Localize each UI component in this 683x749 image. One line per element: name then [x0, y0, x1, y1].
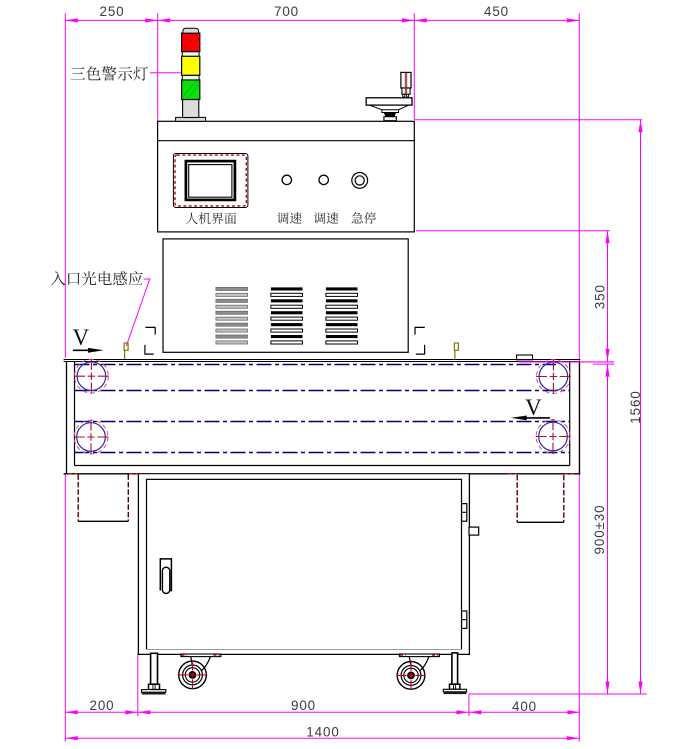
svg-text:350: 350 — [592, 284, 607, 309]
svg-text:450: 450 — [484, 4, 509, 19]
svg-text:1560: 1560 — [628, 390, 643, 423]
svg-text:V: V — [72, 325, 89, 350]
svg-text:V: V — [525, 395, 542, 420]
svg-text:200: 200 — [89, 698, 114, 713]
svg-text:250: 250 — [99, 4, 124, 19]
svg-text:400: 400 — [512, 699, 537, 714]
svg-text:900: 900 — [291, 698, 316, 713]
svg-text:700: 700 — [274, 4, 299, 19]
svg-text:1400: 1400 — [306, 725, 339, 740]
svg-text:900±30: 900±30 — [592, 505, 607, 555]
